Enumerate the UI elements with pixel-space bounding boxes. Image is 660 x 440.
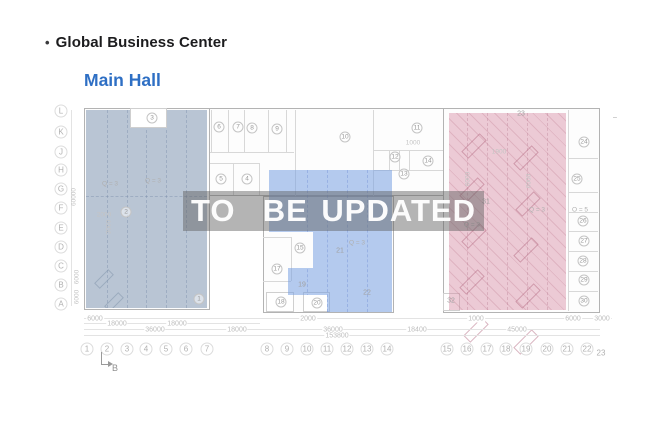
row-axis-marker: D [55, 241, 68, 254]
section-marker-label: B [112, 363, 118, 373]
column-axis-marker: 19 [520, 343, 533, 356]
column-axis-marker: 10 [301, 343, 314, 356]
column-axis-marker: 12 [341, 343, 354, 356]
room-number: 10 [340, 132, 351, 143]
row-axis-marker: L [55, 105, 68, 118]
dimension-label: 1900 [492, 149, 506, 156]
column-axis-marker: 7 [201, 343, 214, 356]
row-axis-marker: F [55, 202, 68, 215]
row-axis-marker: G [55, 183, 68, 196]
column-axis-marker: 16 [461, 343, 474, 356]
wall [568, 110, 569, 311]
section-marker-line [101, 352, 102, 364]
column-axis-marker: 9 [281, 343, 294, 356]
dimension-label: 3000 [106, 220, 113, 234]
grid-line [166, 110, 167, 308]
floor-plan: 1234567891011121314151718202425262728293… [0, 0, 660, 440]
room-number: 2 [121, 207, 132, 218]
grid-line [487, 113, 488, 310]
wall [409, 150, 410, 170]
room-number: 24 [579, 137, 590, 148]
room-number: 3 [147, 113, 158, 124]
room-number: 11 [412, 123, 423, 134]
dimension-label: 6000 [74, 290, 81, 304]
room-number: 8 [247, 123, 258, 134]
column-axis-marker: 20 [541, 343, 554, 356]
row-axis-marker: C [55, 260, 68, 273]
column-axis-marker: 1 [81, 343, 94, 356]
dimension-label: 36000 [144, 327, 165, 334]
wall [228, 110, 229, 152]
wall [373, 150, 443, 151]
wall [568, 271, 598, 272]
dimension-label: 18000 [226, 327, 247, 334]
room-number: 25 [572, 174, 583, 185]
wall [568, 192, 598, 193]
wall [568, 291, 598, 292]
dimension-label: 1000 [467, 316, 485, 323]
room-number: 26 [578, 216, 589, 227]
room-label: 21 [336, 248, 344, 255]
column-axis-marker: 21 [561, 343, 574, 356]
room-number: 27 [579, 236, 590, 247]
wall [263, 281, 291, 282]
wall [210, 163, 260, 164]
row-axis-marker: E [55, 222, 68, 235]
room-number: 17 [272, 264, 283, 275]
dimension-label: 2000 [299, 316, 317, 323]
room-number: 13 [399, 169, 410, 180]
column-axis-marker: 13 [361, 343, 374, 356]
watermark-band: TO BE UPDATED [183, 191, 484, 231]
grid-line [547, 113, 548, 310]
column-axis-marker: 17 [481, 343, 494, 356]
grid-line [146, 110, 147, 308]
capacity-label: O = 5 [572, 207, 588, 214]
wall [211, 110, 212, 152]
dimension-label: 1000 [406, 140, 420, 147]
dimension-line [84, 318, 612, 319]
dimension-label: 2000 [97, 212, 111, 219]
dimension-label: 153800 [324, 333, 349, 340]
dimension-line [71, 110, 72, 306]
column-axis-marker: 4 [140, 343, 153, 356]
capacity-label: Q = 3 [349, 240, 365, 247]
dimension-label: 6000 [564, 316, 582, 323]
room-number: 14 [423, 156, 434, 167]
capacity-label: Q = 3 [529, 207, 545, 214]
dimension-label: 18000 [106, 321, 127, 328]
room-number: 29 [579, 275, 590, 286]
room-number: 20 [312, 298, 323, 309]
room-label: 23 [517, 111, 525, 118]
room-number: 12 [390, 152, 401, 163]
dimension-label: 60000 [71, 188, 78, 206]
capacity-label: Q = 3 [102, 181, 118, 188]
column-axis-marker: 15 [441, 343, 454, 356]
column-axis-marker: 18 [500, 343, 513, 356]
room-label: – [613, 115, 617, 122]
wall [268, 110, 269, 152]
wall [263, 237, 291, 238]
column-axis-marker: 8 [261, 343, 274, 356]
room-label: 22 [363, 290, 371, 297]
row-axis-marker: H [55, 164, 68, 177]
column-axis-marker: 5 [160, 343, 173, 356]
room-number: 15 [295, 243, 306, 254]
wall [568, 158, 598, 159]
wall [244, 110, 245, 152]
column-axis-marker: 3 [121, 343, 134, 356]
wall [286, 110, 287, 152]
wall [210, 152, 294, 153]
grid-line [507, 113, 508, 310]
row-axis-marker: J [55, 146, 68, 159]
room-number: 18 [276, 297, 287, 308]
room-number: 28 [578, 256, 589, 267]
wall [568, 251, 598, 252]
dimension-label: 6000 [86, 316, 104, 323]
row-axis-marker: B [55, 279, 68, 292]
page: •Global Business Center Main Hall [0, 0, 660, 440]
room-number: 9 [272, 124, 283, 135]
column-axis-marker: 6 [180, 343, 193, 356]
dimension-label: 18400 [406, 327, 427, 334]
dimension-label: 3000 [593, 316, 611, 323]
room-number: 30 [579, 296, 590, 307]
wall [568, 231, 598, 232]
column-axis-marker: 14 [381, 343, 394, 356]
room-number: 1 [194, 294, 205, 305]
room-number: 5 [216, 174, 227, 185]
room-label: 32 [447, 298, 455, 305]
dimension-label: 6000 [465, 172, 472, 186]
row-axis-marker: K [55, 126, 68, 139]
column-axis-marker-23: 23 [597, 349, 606, 358]
dimension-label: 6000 [526, 174, 533, 188]
capacity-label: Q = 3 [145, 178, 161, 185]
room-number: 7 [233, 122, 244, 133]
room-number: 4 [242, 174, 253, 185]
dimension-label: 6000 [74, 270, 81, 284]
column-axis-marker: 22 [581, 343, 594, 356]
room-label: 19 [298, 282, 306, 289]
watermark-text: TO BE UPDATED [191, 193, 476, 229]
room-number: 6 [214, 122, 225, 133]
column-axis-marker: 11 [321, 343, 334, 356]
row-axis-marker: A [55, 298, 68, 311]
dimension-label: 45000 [506, 327, 527, 334]
column-axis-marker: 2 [101, 343, 114, 356]
equipment-mark [94, 269, 114, 289]
dimension-label: 18000 [166, 321, 187, 328]
